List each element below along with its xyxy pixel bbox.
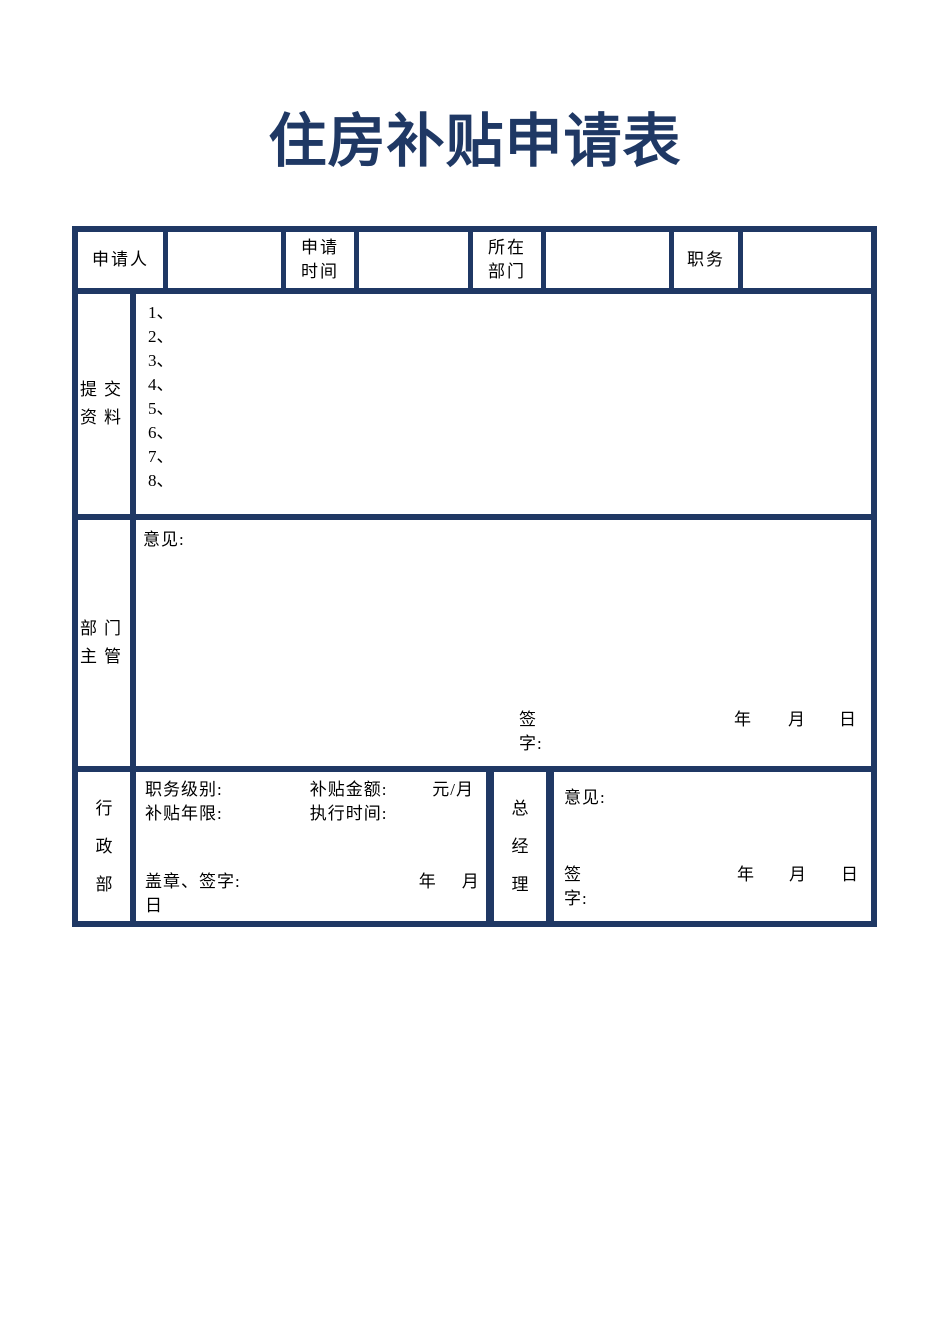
day-label: 日 bbox=[841, 863, 859, 911]
department-label: 所在 部门 bbox=[473, 232, 546, 288]
material-item: 7、 bbox=[148, 445, 871, 469]
admin-dept-line1: 职务级别: 补贴金额: 元/月 bbox=[136, 778, 486, 802]
materials-list-area[interactable]: 1、2、3、4、5、6、7、8、 bbox=[136, 294, 871, 514]
document-page: 住房补贴申请表 申请人 申请 时间 所在 部门 职务 提交 资料 1、2、3、4… bbox=[0, 0, 950, 1344]
approval-section: 行 政 部 职务级别: 补贴金额: 元/月 补贴年限: 执行时间: 盖章、签字:… bbox=[78, 772, 871, 921]
apply-time-value-cell[interactable] bbox=[359, 232, 473, 288]
position-level-label: 职务级别: bbox=[145, 778, 223, 802]
year-label: 年 bbox=[737, 863, 755, 911]
applicant-label: 申请人 bbox=[78, 232, 168, 288]
admin-dept-sign-row: 盖章、签字: 年 月 bbox=[136, 870, 486, 894]
applicant-value-cell[interactable] bbox=[168, 232, 286, 288]
month-label: 月 bbox=[462, 870, 480, 894]
general-manager-area[interactable]: 意见: 签字: 年 月 日 bbox=[554, 772, 871, 921]
month-label: 月 bbox=[789, 863, 807, 911]
dept-manager-opinion-area[interactable]: 意见: 签字: 年 月 日 bbox=[136, 520, 871, 766]
department-value-cell[interactable] bbox=[546, 232, 674, 288]
material-item: 3、 bbox=[148, 349, 871, 373]
material-item: 1、 bbox=[148, 301, 871, 325]
general-manager-sign-label: 签字: bbox=[564, 863, 603, 911]
admin-dept-label: 行 政 部 bbox=[78, 772, 136, 921]
materials-section: 提交 资料 1、2、3、4、5、6、7、8、 bbox=[78, 294, 871, 520]
stamp-sign-label: 盖章、签字: bbox=[145, 870, 241, 894]
day-label: 日 bbox=[145, 894, 163, 918]
dept-manager-section: 部门 主管 意见: 签字: 年 月 日 bbox=[78, 520, 871, 772]
year-label: 年 bbox=[734, 708, 752, 756]
day-label: 日 bbox=[839, 708, 857, 756]
material-item: 2、 bbox=[148, 325, 871, 349]
application-form-table: 申请人 申请 时间 所在 部门 职务 提交 资料 1、2、3、4、5、6、7、8… bbox=[72, 226, 877, 927]
admin-dept-day-row: 日 bbox=[136, 894, 486, 918]
general-manager-label: 总 经 理 bbox=[494, 772, 554, 921]
execution-time-label: 执行时间: bbox=[310, 802, 388, 826]
material-item: 5、 bbox=[148, 397, 871, 421]
amount-unit-label: 元/月 bbox=[432, 778, 474, 802]
materials-label: 提交 资料 bbox=[78, 294, 136, 514]
general-manager-sign-row: 签字: 年 月 日 bbox=[564, 863, 859, 911]
subsidy-amount-label: 补贴金额: bbox=[310, 778, 388, 802]
year-label: 年 bbox=[419, 870, 437, 894]
material-item: 6、 bbox=[148, 421, 871, 445]
material-item: 4、 bbox=[148, 373, 871, 397]
general-manager-opinion-label: 意见: bbox=[564, 786, 859, 810]
month-label: 月 bbox=[788, 708, 806, 756]
position-value-cell[interactable] bbox=[743, 232, 871, 288]
dept-manager-sign-label: 签字: bbox=[519, 708, 558, 756]
subsidy-years-label: 补贴年限: bbox=[145, 802, 223, 826]
material-item: 8、 bbox=[148, 469, 871, 493]
position-label: 职务 bbox=[674, 232, 743, 288]
dept-manager-label: 部门 主管 bbox=[78, 520, 136, 766]
admin-dept-area[interactable]: 职务级别: 补贴金额: 元/月 补贴年限: 执行时间: 盖章、签字: 年 月 日 bbox=[136, 772, 494, 921]
applicant-info-row: 申请人 申请 时间 所在 部门 职务 bbox=[78, 232, 871, 294]
dept-manager-sign-row: 签字: 年 月 日 bbox=[143, 708, 857, 756]
dept-manager-opinion-label: 意见: bbox=[143, 528, 857, 552]
admin-dept-line2: 补贴年限: 执行时间: bbox=[136, 802, 486, 826]
page-title: 住房补贴申请表 bbox=[0, 104, 950, 180]
apply-time-label: 申请 时间 bbox=[286, 232, 359, 288]
